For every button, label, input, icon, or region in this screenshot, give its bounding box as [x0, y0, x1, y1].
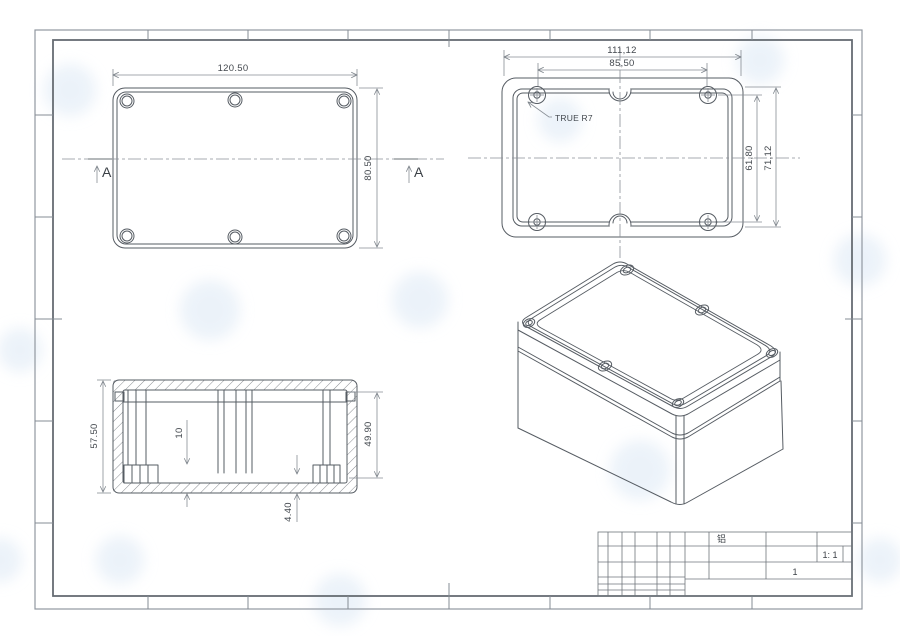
sheet-border [35, 30, 862, 609]
top-view-height-label: 80.50 [363, 155, 374, 180]
border-ticks-right [845, 115, 862, 523]
top-view: 120.50 80.50 A A [62, 63, 444, 248]
radius-callout-label: TRUE R7 [555, 113, 593, 123]
border-ticks-top [148, 30, 752, 47]
section-overall-height-label: 57.50 [89, 423, 100, 448]
drawing-canvas: 120.50 80.50 A A [0, 0, 900, 636]
title-block: 铝 1: 1 1 [598, 532, 852, 596]
section-view: 57.50 49.90 10 4.40 [89, 380, 383, 522]
section-boss-height-label: 10 [174, 427, 185, 438]
lid-inner-height-label: 61,80 [744, 145, 755, 170]
section-dim-overall-height: 57.50 [89, 380, 111, 493]
top-view-screw-holes [120, 93, 351, 244]
top-view-width-label: 120.50 [218, 63, 249, 74]
lid-view-dim-inner-height: 61,80 [718, 95, 762, 222]
title-block-sheet-number: 1 [792, 567, 797, 577]
section-label-right: A [414, 164, 424, 180]
title-block-scale: 1: 1 [822, 550, 837, 560]
section-arrow-left: A [88, 159, 112, 183]
section-cavity-height-label: 49.90 [363, 421, 374, 446]
section-view-bosses [124, 390, 340, 483]
section-base-thickness-label: 4.40 [283, 502, 294, 522]
title-block-material: 铝 [717, 533, 726, 544]
section-dim-boss-height: 10 [174, 420, 187, 507]
top-view-dim-width: 120.50 [113, 63, 357, 86]
top-view-dim-height: 80.50 [359, 88, 383, 248]
watermark-texture [0, 36, 900, 626]
border-ticks-left [35, 115, 62, 523]
title-block-revision-grid [598, 532, 685, 596]
section-label-left: A [102, 164, 112, 180]
lid-outer-width-label: 111,12 [607, 45, 636, 56]
section-arrow-right: A [394, 159, 424, 183]
lid-hole-spacing-label: 85,50 [609, 58, 634, 69]
lid-outer-height-label: 71,12 [763, 145, 774, 170]
drawing-sheet: 120.50 80.50 A A [0, 0, 900, 636]
